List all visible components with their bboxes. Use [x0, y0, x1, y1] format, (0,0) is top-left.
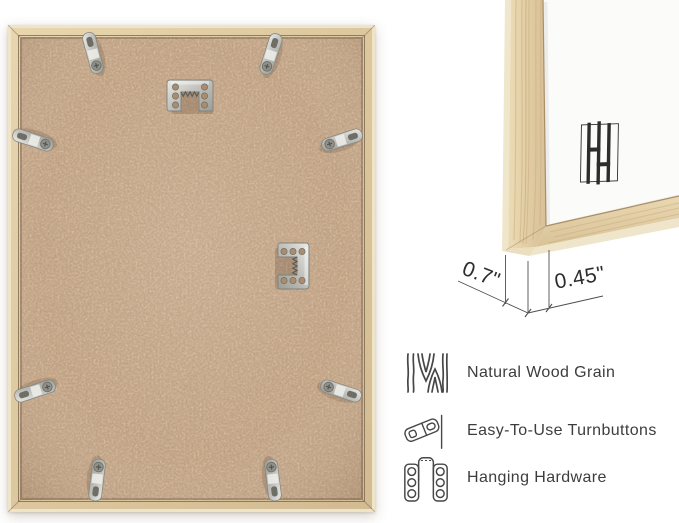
sawtooth-hanger-top: [167, 80, 214, 114]
product-infographic: 0.7" 0.45" Natural Wood Grain: [0, 0, 679, 523]
feature-label-hanging-hardware: Hanging Hardware: [467, 469, 607, 487]
feature-row-turnbuttons: Easy-To-Use Turnbuttons: [403, 408, 657, 454]
feature-label-turnbuttons: Easy-To-Use Turnbuttons: [467, 422, 657, 440]
feature-row-wood-grain: Natural Wood Grain: [403, 353, 615, 393]
hanging-hardware-icon: [403, 449, 449, 507]
wood-grain-icon: [403, 353, 449, 393]
frame-back-svg: [8, 25, 375, 512]
frame-back-photo: [8, 25, 375, 512]
turnbutton-icon: [403, 408, 449, 454]
feature-row-hanging-hardware: Hanging Hardware: [403, 449, 607, 507]
frame-mat: [543, 0, 679, 226]
sawtooth-hanger-side: [275, 243, 309, 290]
frame-rail-vertical: [502, 0, 546, 256]
feature-label-wood-grain: Natural Wood Grain: [467, 364, 615, 382]
